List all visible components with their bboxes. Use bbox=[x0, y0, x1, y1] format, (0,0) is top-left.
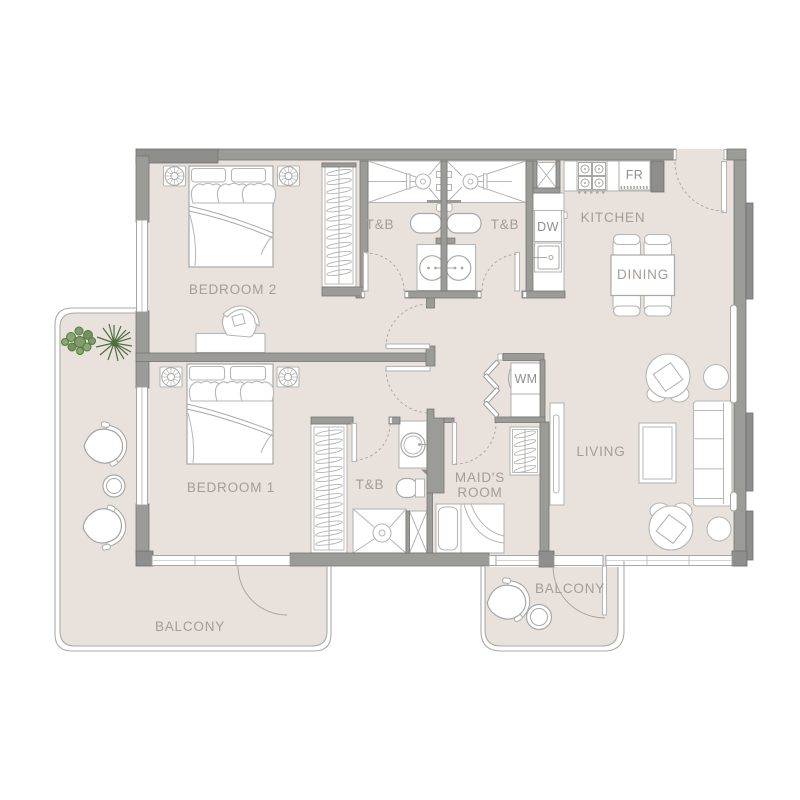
svg-text:ROOM: ROOM bbox=[457, 485, 502, 500]
svg-text:T&B: T&B bbox=[356, 477, 385, 492]
svg-text:DW: DW bbox=[537, 220, 559, 234]
svg-text:WM: WM bbox=[514, 372, 537, 386]
svg-text:BEDROOM 2: BEDROOM 2 bbox=[189, 282, 277, 297]
svg-text:MAID'S: MAID'S bbox=[455, 470, 505, 485]
svg-text:BEDROOM 1: BEDROOM 1 bbox=[187, 480, 275, 495]
svg-text:FR: FR bbox=[626, 168, 643, 182]
svg-text:BALCONY: BALCONY bbox=[155, 619, 225, 634]
svg-text:DINING: DINING bbox=[617, 267, 669, 282]
svg-text:BALCONY: BALCONY bbox=[535, 581, 605, 596]
svg-text:KITCHEN: KITCHEN bbox=[581, 210, 646, 225]
svg-text:T&B: T&B bbox=[366, 217, 395, 232]
svg-text:LIVING: LIVING bbox=[576, 444, 625, 459]
svg-text:T&B: T&B bbox=[491, 217, 520, 232]
